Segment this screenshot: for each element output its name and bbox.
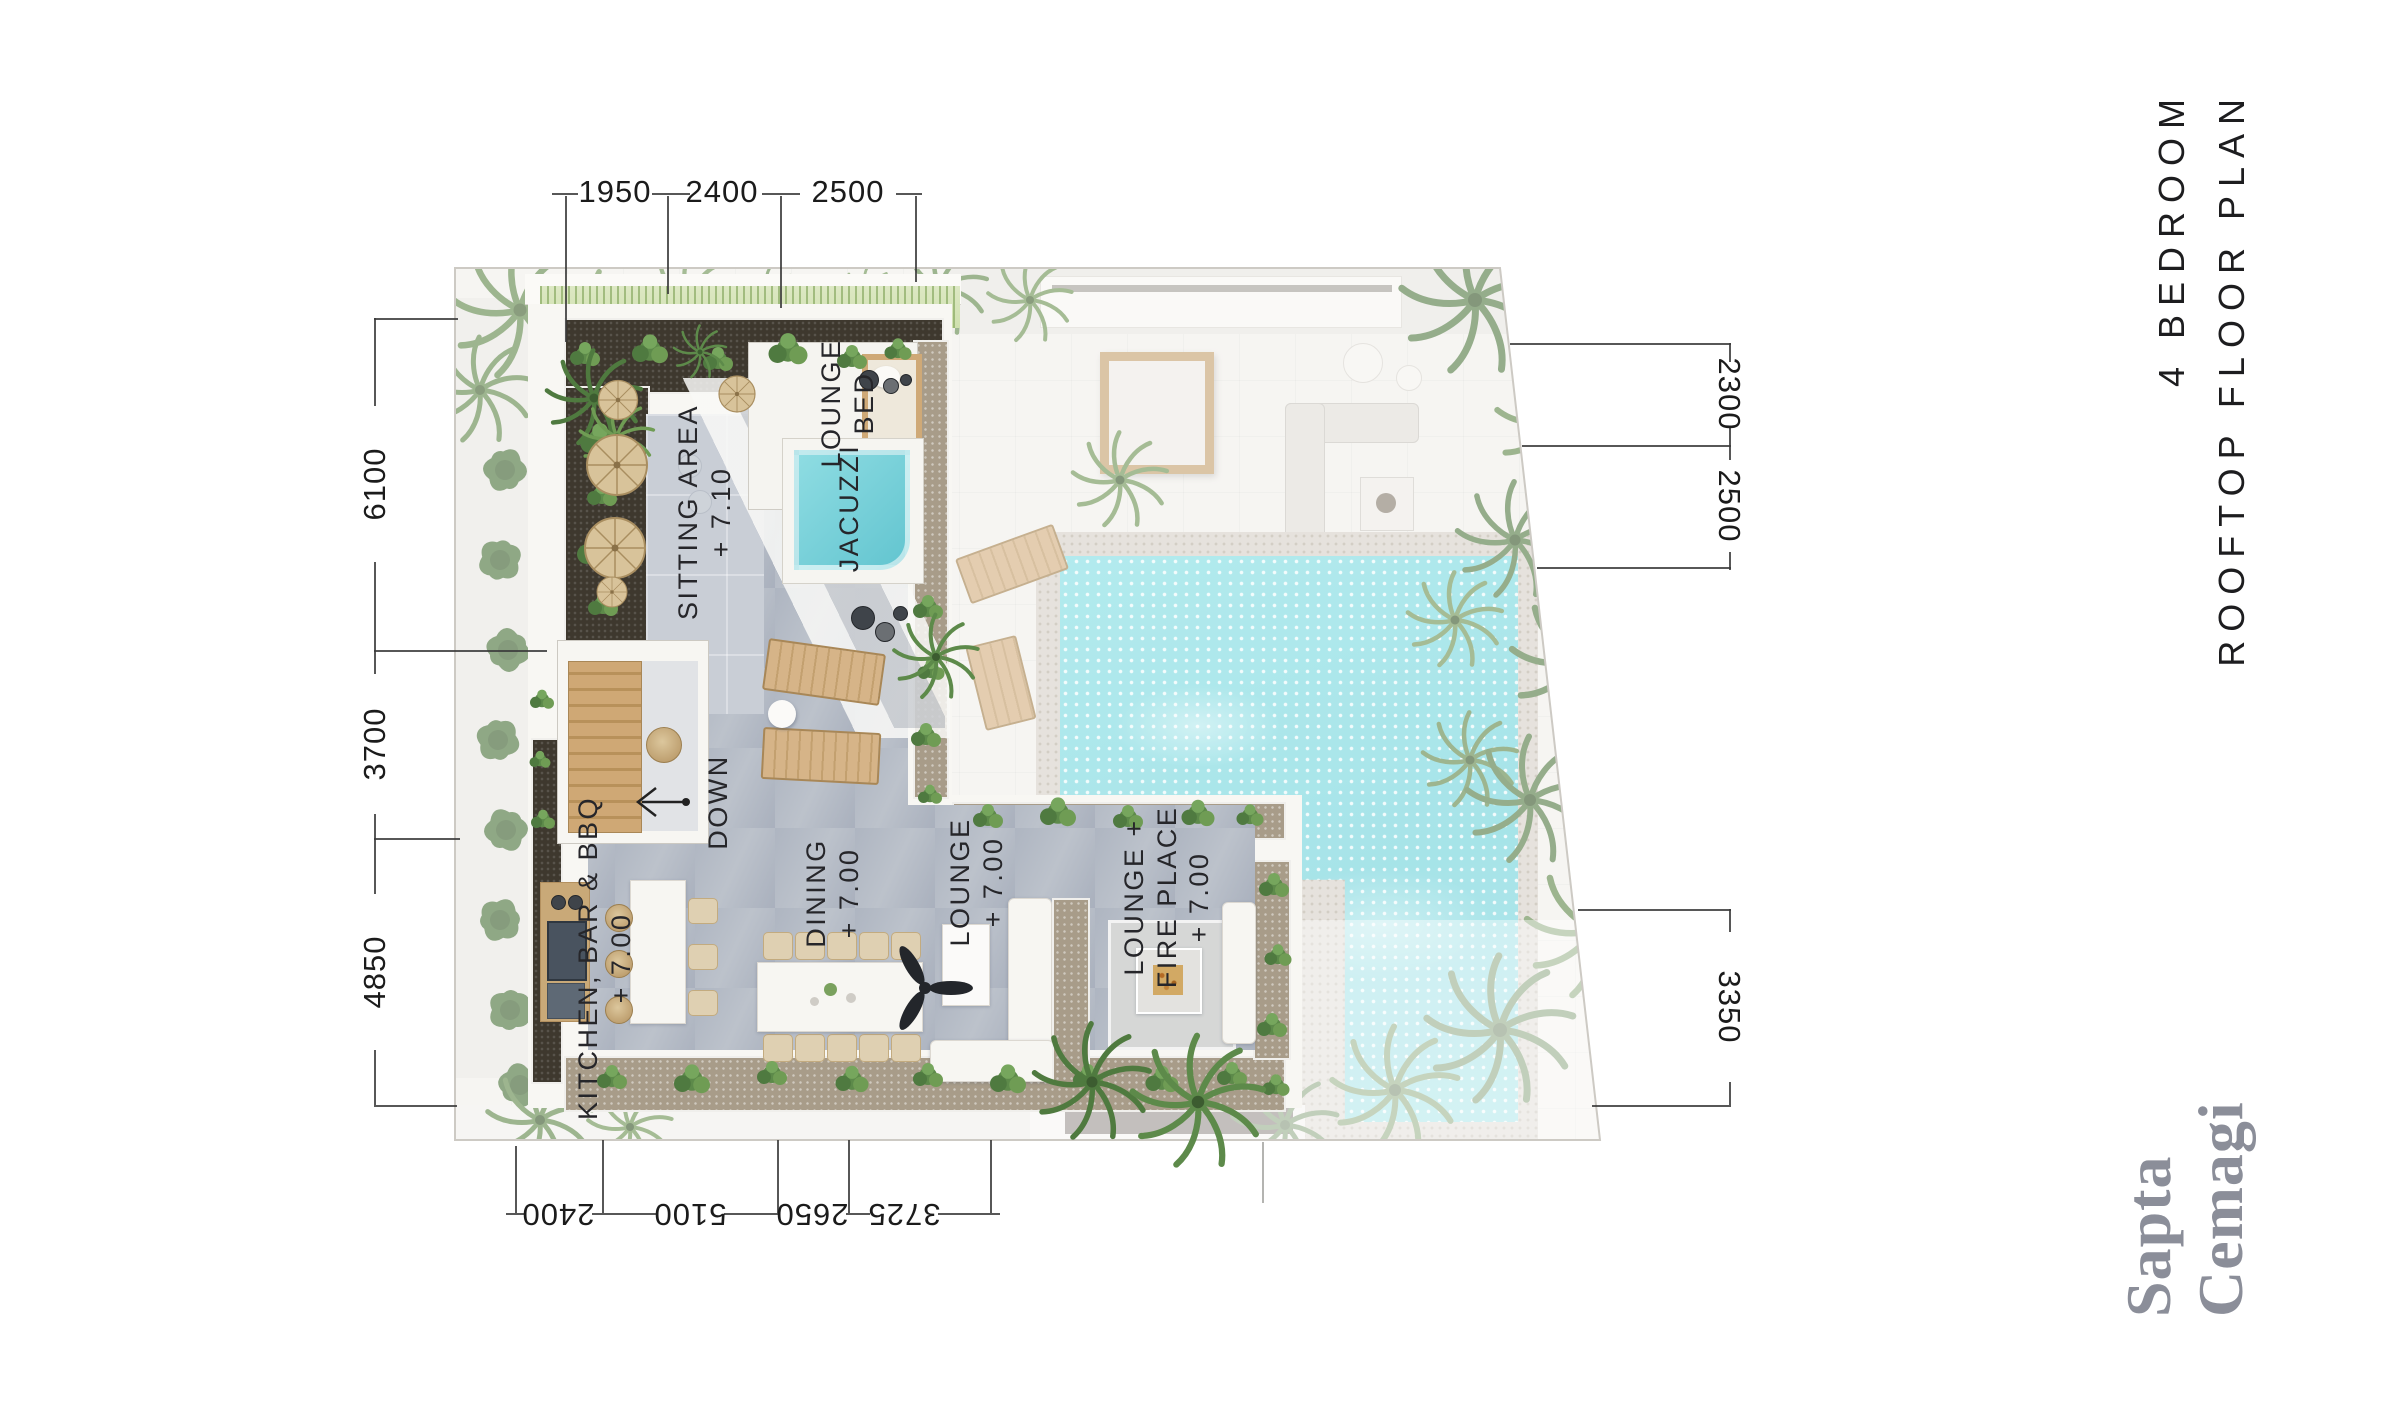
sink xyxy=(551,895,566,910)
dining-chair xyxy=(827,1034,857,1062)
rattan-chair xyxy=(646,727,682,763)
dim-label: 2400 xyxy=(483,1198,633,1230)
plant-pot xyxy=(851,606,875,630)
dining-chair xyxy=(859,1034,889,1062)
dim-label: 6100 xyxy=(359,409,391,559)
plant-pot xyxy=(893,606,908,621)
dining-table xyxy=(757,962,923,1032)
dim-label: 3725 xyxy=(829,1198,979,1230)
label-lounge: LOUNGE+ 7.00 xyxy=(944,807,1010,957)
dining-chair xyxy=(891,1034,921,1062)
label-kitchen: KITCHEN, BAR & BBQ+ 7.00 xyxy=(572,793,638,1123)
sun-lounger xyxy=(761,727,882,785)
dim-label: 4850 xyxy=(359,897,391,1047)
dim-label: 3350 xyxy=(1713,932,1745,1082)
dim-label: 2500 xyxy=(773,176,923,208)
floor-plan-sheet: 1950 2400 2500 6100 3700 4850 2300 2500 … xyxy=(0,0,2400,1422)
side-table xyxy=(768,700,796,728)
dining-chair xyxy=(891,932,921,960)
plant-pot xyxy=(883,378,899,394)
lounge-sofa xyxy=(930,1040,1054,1082)
dining-chair xyxy=(795,1034,825,1062)
lounge-planter xyxy=(1052,898,1090,1084)
sheet-title-line2: ROOFTOP FLOOR PLAN xyxy=(2202,90,2262,690)
label-lounge-fireplace: LOUNGE +FIRE PLACE+ 7.00 xyxy=(1117,802,1217,992)
bar-chair xyxy=(688,990,718,1016)
brand-logo-line1: Sapta xyxy=(2113,987,2185,1317)
dim-label: 3700 xyxy=(359,669,391,819)
planter-wing-right xyxy=(1253,860,1291,1060)
label-jacuzzi: JACUZZI xyxy=(833,423,865,593)
bar-chair xyxy=(688,898,718,924)
planter-bottom xyxy=(564,1056,1286,1112)
plant-pot xyxy=(875,622,895,642)
bar-island xyxy=(630,880,686,1024)
dim-label: 2500 xyxy=(1713,431,1745,581)
dining-chair xyxy=(763,1034,793,1062)
brand-logo: Sapta Cemagi xyxy=(2113,987,2263,1317)
label-down: DOWN xyxy=(703,742,733,862)
bar-chair xyxy=(688,944,718,970)
brand-logo-line2: Cemagi xyxy=(2185,987,2257,1317)
sheet-title-line1: 4 BEDROOM xyxy=(2142,90,2202,690)
lounge-sofa xyxy=(1222,902,1256,1044)
dining-chair xyxy=(763,932,793,960)
plant-pot xyxy=(900,374,912,386)
sheet-title: 4 BEDROOM ROOFTOP FLOOR PLAN xyxy=(2142,90,2262,690)
label-dining: DINING+ 7.00 xyxy=(800,818,866,968)
label-sitting-area: SITTING AREA+ 7.10 xyxy=(672,372,738,652)
